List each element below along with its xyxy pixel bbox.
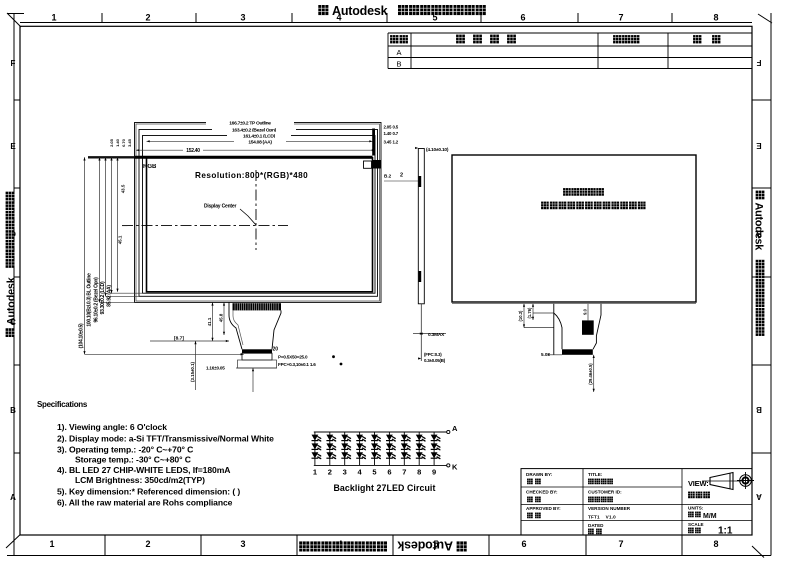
svg-text:DRAWN BY:: DRAWN BY: [526,472,553,477]
svg-text:0.3±0.05(B): 0.3±0.05(B) [424,358,446,363]
svg-text:3.45: 3.45 [384,140,393,145]
svg-text:VIEW:: VIEW: [688,479,709,488]
svg-text:6: 6 [521,539,526,549]
svg-text:P=0.5X50=25.0: P=0.5X50=25.0 [278,355,308,360]
svg-text:[8.7]: [8.7] [174,336,184,342]
svg-text:1.40: 1.40 [384,131,393,136]
svg-text:B: B [396,60,401,69]
svg-text:Resolution:800*(RGB)*480: Resolution:800*(RGB)*480 [195,171,308,180]
svg-text:6: 6 [387,468,391,477]
svg-text:B.2: B.2 [384,174,392,179]
svg-text:1.40: 1.40 [115,138,120,147]
svg-text:2: 2 [400,173,403,179]
svg-text:0.70: 0.70 [121,138,126,147]
svg-text:CHECKED BY:: CHECKED BY: [526,490,558,495]
svg-text:8: 8 [713,13,718,23]
svg-text:154.08 (AA): 154.08 (AA) [248,139,272,145]
svg-text:3.45: 3.45 [127,138,132,147]
svg-text:FPC+0.3,10±0.1 1.6: FPC+0.3,10±0.1 1.6 [278,362,316,367]
svg-text:K: K [452,463,458,472]
svg-text:3). Operating temp.: -20° C~+7: 3). Operating temp.: -20° C~+70° C [57,445,193,455]
svg-text:93.30±0.2 (LCD): 93.30±0.2 (LCD) [100,281,106,314]
svg-text:3: 3 [240,539,245,549]
svg-text:F: F [756,58,761,67]
svg-text:(104.10±0.5): (104.10±0.5) [79,323,85,348]
svg-text:0.3MAX: 0.3MAX [428,332,445,338]
svg-text:2.05: 2.05 [384,125,393,130]
svg-text:Backlight 27LED Circuit: Backlight 27LED Circuit [333,483,435,493]
svg-text:M/M: M/M [703,513,717,520]
svg-text:2.05: 2.05 [109,138,114,147]
svg-text:5: 5 [372,468,376,477]
svg-text:6: 6 [520,13,525,23]
svg-text:1.16±0.05: 1.16±0.05 [206,366,225,371]
svg-text:85.92 (AA): 85.92 (AA) [107,285,113,307]
svg-text:45.8: 45.8 [219,313,224,322]
svg-text:152.40: 152.40 [186,148,200,154]
svg-text:96.10±0.2 (Bezel Opn): 96.10±0.2 (Bezel Opn) [94,277,100,323]
svg-text:Autodesk: Autodesk [5,276,17,325]
svg-text:1: 1 [313,468,317,477]
svg-text:43.5: 43.5 [121,184,126,193]
svg-text:A: A [756,492,762,501]
svg-text:1:1: 1:1 [718,526,733,537]
svg-text:9: 9 [432,468,436,477]
svg-text:A: A [452,424,458,433]
svg-text:LCM Brightness: 350cd/m2(TYP): LCM Brightness: 350cd/m2(TYP) [75,475,205,485]
svg-text:7: 7 [402,468,406,477]
svg-text:Specifications: Specifications [37,400,88,409]
svg-text:(1.76): (1.76) [527,307,532,319]
svg-text:2: 2 [145,539,150,549]
svg-text:TITLE:: TITLE: [588,472,603,477]
svg-text:1: 1 [49,539,54,549]
svg-text:VERSION NUMBER: VERSION NUMBER [588,506,631,511]
svg-text:41.1: 41.1 [207,317,212,326]
svg-text:SCALE: SCALE [688,522,704,527]
svg-text:2: 2 [145,13,150,23]
svg-text:Autodesk: Autodesk [397,539,453,553]
svg-text:7: 7 [618,13,623,23]
svg-text:F: F [11,59,16,68]
svg-text:E: E [756,141,762,150]
svg-text:UNITS:: UNITS: [688,506,704,511]
svg-text:A: A [396,48,401,57]
svg-text:Display Center: Display Center [204,204,236,210]
svg-text:DATED: DATED [588,523,604,528]
svg-text:(3.15±0.1): (3.15±0.1) [190,361,195,382]
svg-text:6). All the raw material are R: 6). All the raw material are Rohs compli… [57,498,233,508]
svg-text:E: E [10,142,16,151]
svg-text:TFT1 V1.0: TFT1 V1.0 [588,515,616,520]
svg-text:4). BL LED 27 CHIP-WHITE LEDS,: 4). BL LED 27 CHIP-WHITE LEDS, If=180mA [57,465,230,475]
svg-text:Autodesk: Autodesk [332,4,388,18]
svg-text:A: A [10,493,16,502]
svg-text:2: 2 [328,468,332,477]
svg-text:3: 3 [343,468,347,477]
svg-text:Storage temp.: -30° C~+80° C: Storage temp.: -30° C~+80° C [75,455,191,465]
svg-text:(FPC:0.3): (FPC:0.3) [424,352,442,357]
svg-text:0.7: 0.7 [393,131,399,136]
svg-text:7: 7 [618,539,623,549]
svg-text:0.5: 0.5 [393,125,399,130]
svg-text:(10.3): (10.3) [518,310,523,322]
svg-text:9.0: 9.0 [583,308,588,314]
svg-text:B: B [756,405,762,414]
svg-text:(4.10±0.10): (4.10±0.10) [426,147,449,153]
svg-text:Autodesk: Autodesk [753,203,765,252]
svg-text:3: 3 [240,13,245,23]
svg-text:100.10(Bzl.0.3) BL Outline: 100.10(Bzl.0.3) BL Outline [87,273,93,327]
svg-text:2). Display mode: a-Si TFT/Tra: 2). Display mode: a-Si TFT/Transmissive/… [57,434,274,444]
svg-text:CUSTOMER ID:: CUSTOMER ID: [588,490,622,495]
svg-text:1: 1 [51,13,56,23]
svg-text:1). Viewing angle: 6 O'clock: 1). Viewing angle: 6 O'clock [57,422,167,432]
svg-text:45.1: 45.1 [118,235,123,244]
svg-text:APPROVED BY:: APPROVED BY: [526,506,561,511]
svg-text:8: 8 [417,468,421,477]
svg-text:B: B [10,406,16,415]
svg-text:20: 20 [273,347,279,353]
svg-text:1.2: 1.2 [393,140,399,145]
svg-text:8: 8 [713,539,718,549]
svg-text:5). Key dimension:* Referenced: 5). Key dimension:* Referenced dimension… [57,487,240,497]
svg-text:(29.46±0.5): (29.46±0.5) [588,363,593,385]
svg-text:RGB: RGB [143,164,157,170]
